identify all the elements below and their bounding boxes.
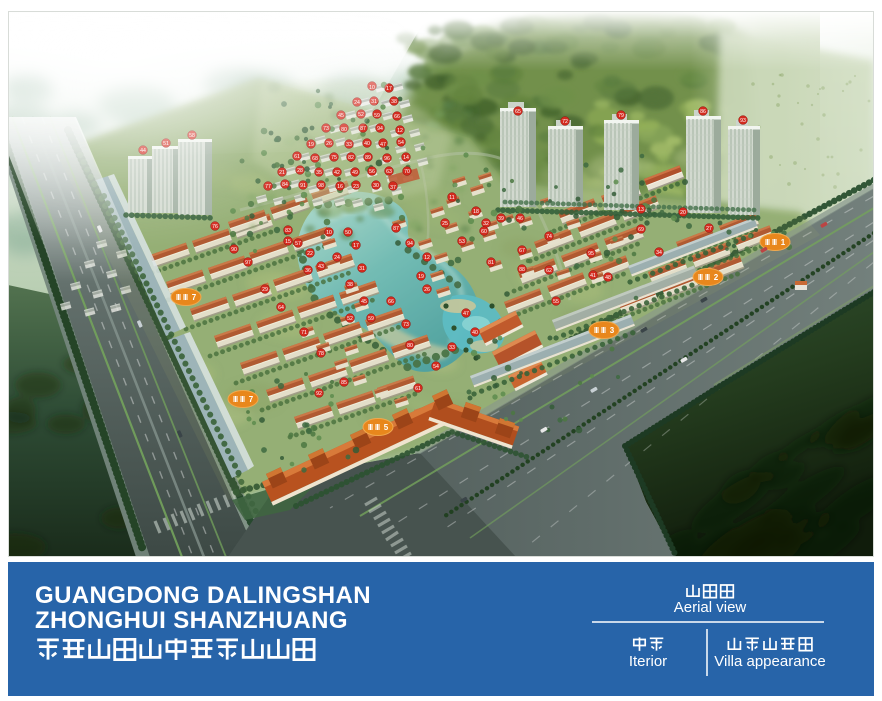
svg-text:32: 32 — [483, 221, 489, 227]
svg-text:16: 16 — [337, 184, 343, 190]
svg-text:47: 47 — [463, 311, 469, 317]
svg-text:90: 90 — [231, 247, 237, 253]
svg-text:Iterior: Iterior — [629, 653, 667, 670]
svg-text:39: 39 — [498, 216, 504, 222]
svg-text:73: 73 — [403, 322, 409, 328]
svg-text:59: 59 — [368, 316, 374, 322]
svg-text:72: 72 — [562, 119, 568, 125]
svg-text:33: 33 — [449, 345, 455, 351]
svg-text:49: 49 — [352, 170, 358, 176]
svg-text:7: 7 — [192, 293, 197, 302]
svg-text:50: 50 — [345, 230, 351, 236]
svg-text:7: 7 — [249, 395, 254, 404]
svg-text:95: 95 — [588, 251, 594, 257]
svg-text:48: 48 — [605, 275, 611, 281]
svg-text:13: 13 — [638, 207, 644, 213]
svg-text:5: 5 — [384, 423, 389, 432]
svg-text:3: 3 — [610, 326, 615, 335]
svg-text:97: 97 — [245, 260, 251, 266]
svg-text:54: 54 — [433, 364, 439, 370]
svg-text:40: 40 — [472, 330, 478, 336]
svg-text:45: 45 — [361, 299, 367, 305]
svg-text:2: 2 — [714, 273, 719, 282]
svg-text:67: 67 — [519, 248, 525, 254]
svg-text:12: 12 — [397, 128, 403, 134]
svg-text:83: 83 — [285, 228, 291, 234]
svg-text:31: 31 — [359, 266, 365, 272]
svg-text:70: 70 — [404, 169, 410, 175]
svg-text:79: 79 — [618, 113, 624, 119]
svg-text:Aerial view: Aerial view — [674, 599, 747, 616]
svg-text:87: 87 — [393, 226, 399, 232]
svg-text:43: 43 — [318, 264, 324, 270]
svg-text:52: 52 — [347, 316, 353, 322]
svg-text:94: 94 — [407, 241, 413, 247]
svg-text:92: 92 — [316, 391, 322, 397]
svg-text:18: 18 — [473, 209, 479, 215]
svg-text:71: 71 — [301, 330, 307, 336]
svg-text:20: 20 — [680, 210, 686, 216]
svg-text:56: 56 — [369, 169, 375, 175]
svg-text:30: 30 — [373, 183, 379, 189]
svg-text:34: 34 — [656, 250, 662, 256]
svg-text:22: 22 — [307, 251, 313, 257]
svg-text:65: 65 — [515, 109, 521, 115]
svg-text:81: 81 — [488, 260, 494, 266]
svg-text:54: 54 — [398, 140, 404, 146]
svg-text:66: 66 — [388, 299, 394, 305]
svg-text:64: 64 — [278, 305, 284, 311]
svg-text:36: 36 — [305, 268, 311, 274]
svg-text:Villa appearance: Villa appearance — [714, 653, 825, 670]
svg-text:69: 69 — [638, 227, 644, 233]
svg-text:62: 62 — [546, 268, 552, 274]
svg-text:47: 47 — [380, 142, 386, 148]
svg-text:85: 85 — [341, 380, 347, 386]
svg-text:78: 78 — [318, 351, 324, 357]
svg-text:26: 26 — [424, 287, 430, 293]
svg-text:53: 53 — [459, 239, 465, 245]
svg-text:24: 24 — [334, 255, 340, 261]
svg-text:61: 61 — [415, 386, 421, 392]
svg-text:12: 12 — [424, 255, 430, 261]
svg-text:38: 38 — [347, 282, 353, 288]
svg-text:80: 80 — [407, 343, 413, 349]
svg-text:57: 57 — [295, 241, 301, 247]
svg-text:14: 14 — [403, 155, 409, 161]
svg-text:11: 11 — [449, 195, 454, 201]
svg-text:41: 41 — [590, 273, 596, 279]
svg-text:27: 27 — [706, 226, 712, 232]
svg-text:46: 46 — [517, 216, 523, 222]
svg-text:25: 25 — [442, 221, 448, 227]
svg-text:55: 55 — [553, 299, 559, 305]
svg-text:74: 74 — [546, 234, 552, 240]
svg-text:29: 29 — [262, 287, 268, 293]
svg-text:37: 37 — [390, 185, 396, 191]
svg-text:15: 15 — [285, 239, 291, 245]
svg-text:23: 23 — [353, 184, 359, 190]
svg-text:10: 10 — [326, 230, 332, 236]
svg-text:93: 93 — [740, 118, 746, 124]
svg-text:63: 63 — [386, 169, 392, 175]
svg-text:60: 60 — [481, 229, 487, 235]
svg-text:1: 1 — [781, 238, 786, 247]
svg-text:19: 19 — [418, 274, 424, 280]
svg-text:86: 86 — [700, 109, 706, 115]
svg-text:88: 88 — [519, 267, 525, 273]
svg-text:17: 17 — [353, 243, 359, 249]
svg-text:96: 96 — [384, 156, 390, 162]
